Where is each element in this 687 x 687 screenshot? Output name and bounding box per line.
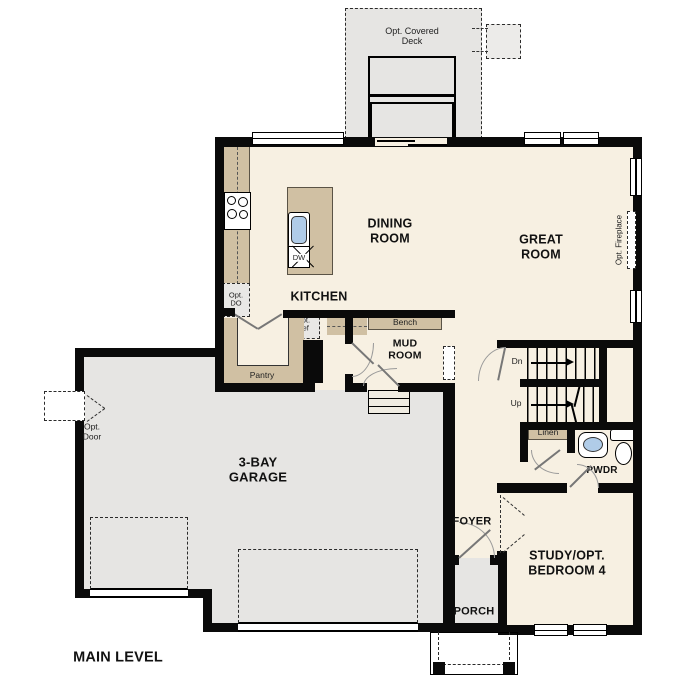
garage-door-1 [90,588,188,598]
study-door-opening [500,495,501,553]
wall-linen-left [520,422,528,462]
garage-bay-outline-1 [90,517,188,589]
garage-door-2 [238,622,418,632]
great-room-label: GREAT ROOM [519,232,563,262]
window [252,132,344,145]
dining-room-label: DINING ROOM [368,216,413,246]
burner-icon [239,210,248,219]
wall-garage-right [443,383,455,632]
wall-linen-right [567,430,575,453]
wall-stairs-right [599,348,607,422]
wall-porch-right [498,555,507,632]
stove-cooktop [224,192,251,230]
wall-kitchen-south [215,308,235,316]
optional-fireplace [627,211,636,269]
sliding-door-panel [377,140,415,142]
burner-icon [238,197,248,207]
window [630,158,642,196]
stairs-up-treads2 [583,387,599,422]
deck-landing [368,56,456,96]
pantry-label: Pantry [250,371,275,381]
porch-post [433,662,445,674]
deck-label: Opt. Covered Deck [385,26,439,46]
floor-plan: Opt. Covered Deck Opt. DO DW Opt. Ref Pa… [0,0,687,687]
burner-icon [227,196,236,205]
wall-garage-top [75,348,224,357]
wall-foyer-bottom-a [443,555,459,565]
wall-garage-left [75,348,84,598]
step-line [369,398,409,399]
wall-stairs-bottom [520,422,642,430]
wall-stairs-mid [520,379,600,387]
porch-label: PORCH [454,606,495,619]
wall-hall-study-a [497,483,567,493]
sliding-door-panel [408,144,447,146]
foyer-label: FOYER [453,516,492,529]
kitchen-label: KITCHEN [291,290,348,305]
deck-side-box [486,24,521,59]
optional-door-outline [44,391,85,421]
stairs-up-arrowhead [566,400,574,408]
stairs-down-arrowhead [566,358,574,366]
wall-mudroom-top [283,310,455,318]
deck-connector-line [472,28,488,29]
garage-bay-outline-2 [238,549,418,623]
plan-title: MAIN LEVEL [73,649,163,666]
powder-sink-basin [583,437,603,452]
deck-connector-line [472,51,488,52]
mudroom-hall-opening [443,346,455,380]
burner-icon [227,209,237,219]
porch-post [503,662,515,674]
wall-stairs-top [497,340,642,348]
optional-door-label: Opt. Door [83,422,101,441]
deck-stairs [368,103,456,139]
step-line [369,406,409,407]
garage-steps [368,390,410,414]
wall-pantry-chunk [303,340,323,383]
wall-mudroom-left-a [345,318,353,344]
window [534,624,568,636]
dishwasher-label: DW [292,254,307,262]
study-label: STUDY/OPT. BEDROOM 4 [528,548,606,578]
wall-pantry-bottom [215,383,315,392]
porch-stoop-inner [438,632,510,665]
window [630,290,642,323]
window [563,132,599,145]
wall-study-bottom [498,625,642,635]
mudroom-label: MUD ROOM [388,338,421,363]
optional-double-oven-label: Opt. DO [229,292,243,309]
wall-garage-bottom-c [203,623,240,632]
garage-label: 3-BAY GARAGE [229,455,287,486]
window [524,132,561,145]
stairs-down-arrow [531,362,567,364]
wall-hall-study-b [598,483,642,493]
bench-label: Bench [393,318,417,328]
stairs-up-arrow [531,404,567,406]
kitchen-sink-basin [291,216,307,244]
toilet-bowl [615,442,632,465]
stairs-down-label: Dn [512,357,523,367]
optional-fireplace-label: Opt. Fireplace [616,215,625,265]
stairs-up-label: Up [511,399,522,409]
window [573,624,607,636]
